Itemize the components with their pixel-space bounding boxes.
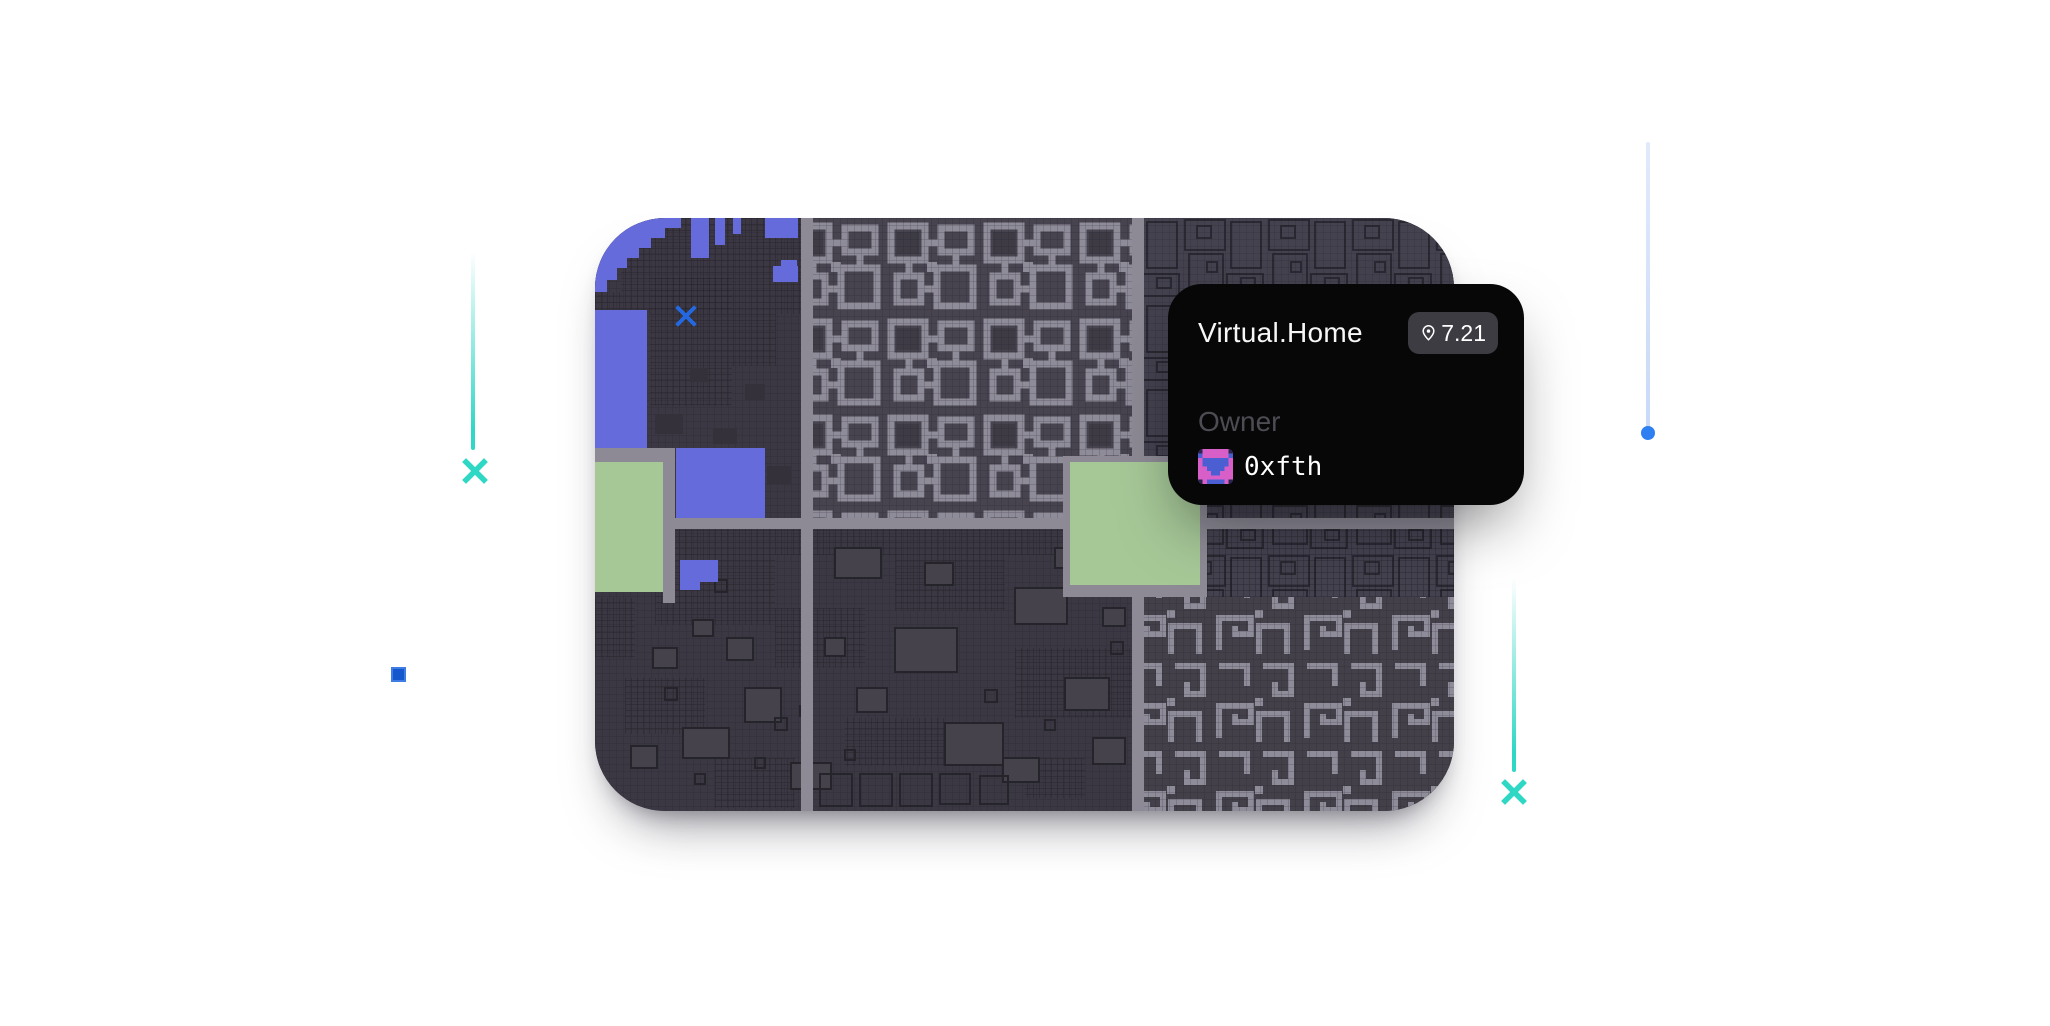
location-pin-icon: [1420, 324, 1437, 342]
blue-dot-icon: [1641, 426, 1655, 440]
owner-label: Owner: [1198, 408, 1498, 436]
teal-gradient-line-left: [471, 252, 475, 450]
tooltip-header-row: Virtual.Home 7.21: [1198, 312, 1498, 354]
parcel-title: Virtual.Home: [1198, 317, 1363, 349]
badge-value: 7.21: [1441, 320, 1486, 347]
teal-x-icon-bottom-right: [1500, 778, 1528, 806]
owner-avatar: [1198, 449, 1233, 484]
owner-row[interactable]: 0xfth: [1198, 449, 1498, 484]
teal-x-icon-left: [461, 457, 489, 485]
owner-name: 0xfth: [1244, 452, 1322, 482]
teal-gradient-line-bottom-right: [1512, 578, 1516, 772]
location-badge: 7.21: [1408, 312, 1498, 354]
parcel-tooltip: Virtual.Home 7.21 Owner: [1168, 284, 1524, 505]
hero-canvas: Virtual.Home 7.21 Owner: [0, 0, 2050, 1026]
blue-line-right: [1646, 142, 1650, 427]
blue-square-icon: [391, 667, 406, 682]
